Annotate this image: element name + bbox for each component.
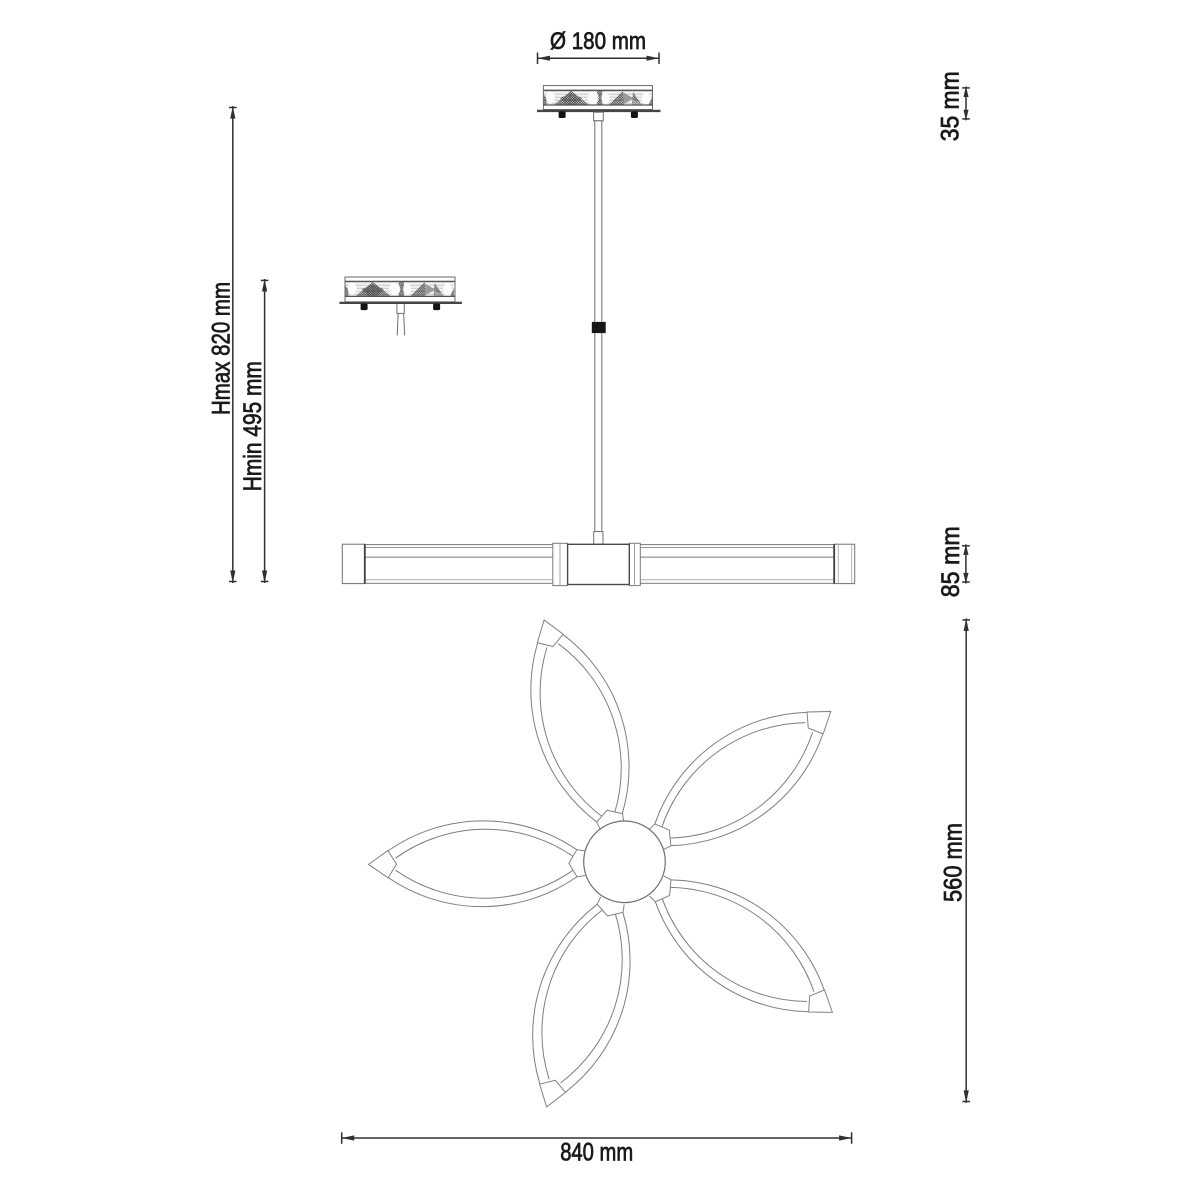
- svg-text:560 mm: 560 mm: [940, 823, 968, 902]
- svg-text:85 mm: 85 mm: [937, 526, 965, 597]
- svg-text:Hmax 820 mm: Hmax 820 mm: [207, 282, 235, 415]
- svg-text:840 mm: 840 mm: [560, 1139, 633, 1167]
- svg-text:35 mm: 35 mm: [937, 71, 965, 141]
- svg-text:Ø 180 mm: Ø 180 mm: [550, 28, 646, 55]
- svg-text:Hmin 495 mm: Hmin 495 mm: [239, 361, 267, 491]
